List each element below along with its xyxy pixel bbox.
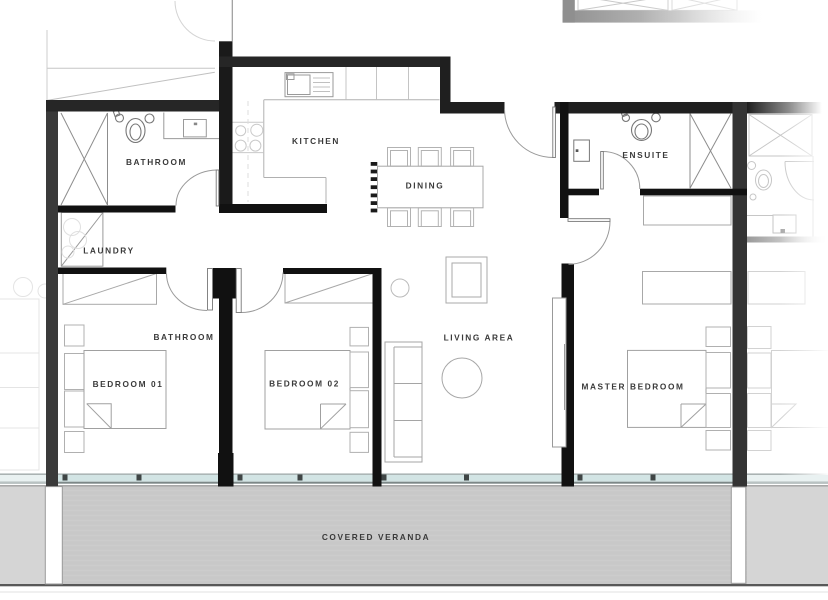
svg-text:LIVING AREA: LIVING AREA bbox=[444, 333, 515, 343]
svg-text:BATHROOM: BATHROOM bbox=[153, 332, 214, 342]
svg-text:BATHROOM: BATHROOM bbox=[126, 157, 187, 167]
svg-text:KITCHEN: KITCHEN bbox=[292, 136, 340, 146]
svg-text:DINING: DINING bbox=[406, 181, 445, 191]
svg-text:BEDROOM 02: BEDROOM 02 bbox=[269, 379, 340, 389]
svg-text:COVERED VERANDA: COVERED VERANDA bbox=[322, 532, 430, 542]
svg-text:MASTER BEDROOM: MASTER BEDROOM bbox=[581, 382, 684, 392]
svg-text:BEDROOM 01: BEDROOM 01 bbox=[93, 379, 164, 389]
svg-text:LAUNDRY: LAUNDRY bbox=[83, 246, 134, 256]
svg-text:ENSUITE: ENSUITE bbox=[622, 150, 669, 160]
